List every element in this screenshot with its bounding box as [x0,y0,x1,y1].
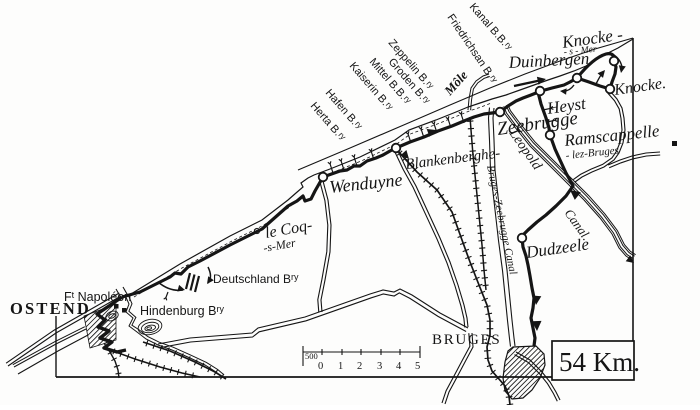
svg-text:1: 1 [338,361,343,372]
svg-text:Deutschland Bry: Deutschland Bry [213,272,299,286]
svg-text:2: 2 [357,361,362,372]
svg-text:Ft Napoléon: Ft Napoléon [64,290,131,304]
svg-text:5: 5 [415,361,420,372]
svg-text:500: 500 [305,351,318,361]
svg-text:BRUGES: BRUGES [432,332,501,348]
svg-text:4: 4 [396,361,402,372]
svg-text:0: 0 [318,361,323,372]
svg-text:Hindenburg Bry: Hindenburg Bry [140,304,224,318]
svg-text:54 Km.: 54 Km. [559,347,640,377]
svg-text:3: 3 [377,361,382,372]
